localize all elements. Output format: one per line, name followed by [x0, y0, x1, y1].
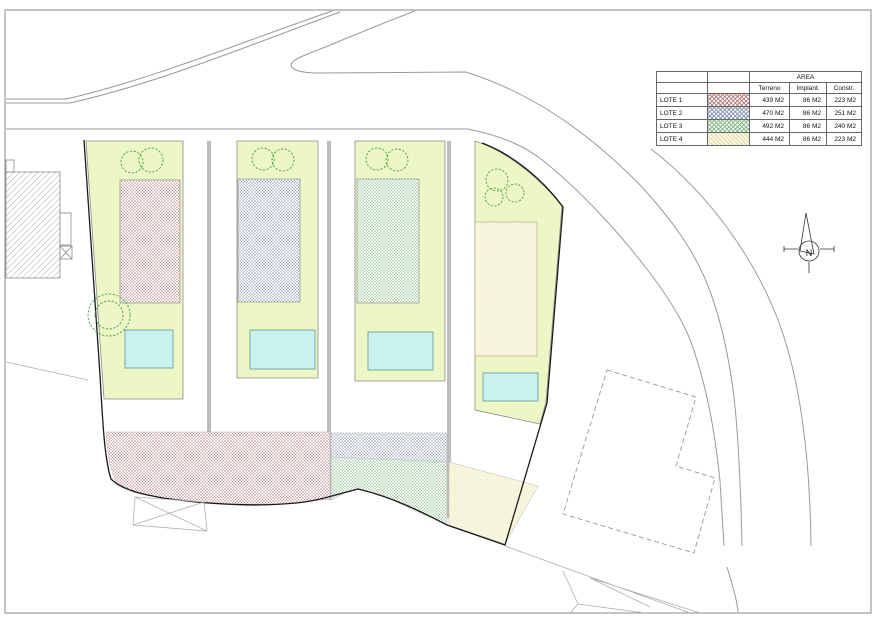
lot-3-swatch [708, 120, 750, 133]
legend-header-row-2: Terreno Implant. Constr. [657, 83, 862, 94]
legend-row-lote1: LOTE 1 439 M2 86 M2 223 M2 [657, 94, 862, 107]
lot-implant-value: 86 M2 [790, 107, 827, 120]
legend-col-implant: Implant. [790, 83, 827, 94]
lot-3-pool [368, 332, 433, 370]
neighbor-building-annex-right [60, 213, 71, 245]
lot-constr-value: 251 M2 [827, 107, 862, 120]
legend-col-constr: Constr. [827, 83, 862, 94]
legend-row-lote3: LOTE 3 492 M2 86 M2 240 M2 [657, 120, 862, 133]
lot-terreno-value: 444 M2 [750, 133, 790, 146]
lot-constr-value: 223 M2 [827, 133, 862, 146]
lot-2-swatch [708, 107, 750, 120]
lot-terreno-value: 439 M2 [750, 94, 790, 107]
lot-4-swatch [708, 133, 750, 146]
lot-implant-value: 86 M2 [790, 94, 827, 107]
lot-terreno-value: 470 M2 [750, 107, 790, 120]
lot-label: LOTE 2 [657, 107, 708, 120]
lot-label: LOTE 3 [657, 120, 708, 133]
legend-blank-cell [657, 83, 708, 94]
lot-implant-value: 86 M2 [790, 120, 827, 133]
lot-constr-value: 240 M2 [827, 120, 862, 133]
lot-1-pool [125, 330, 173, 368]
legend-row-lote4: LOTE 4 444 M2 86 M2 223 M2 [657, 133, 862, 146]
legend-row-lote2: LOTE 2 470 M2 86 M2 251 M2 [657, 107, 862, 120]
lot-2-house [238, 179, 300, 302]
legend-header-row-1: AREA [657, 72, 862, 83]
lot-1-swatch [708, 94, 750, 107]
legend-table: AREA Terreno Implant. Constr. LOTE 1 439… [656, 71, 862, 146]
legend-blank-cell [657, 72, 708, 83]
lot-terreno-value: 492 M2 [750, 120, 790, 133]
lot-1-house [120, 180, 180, 303]
lot-implant-value: 86 M2 [790, 133, 827, 146]
compass-north-label: N [806, 248, 813, 258]
divider-lot3-lot4 [447, 141, 451, 518]
legend-blank-cell [708, 72, 750, 83]
lot-4-pool [483, 373, 538, 401]
legend-area-header: AREA [750, 72, 862, 83]
lot-4-house [475, 222, 537, 356]
lot-label: LOTE 1 [657, 94, 708, 107]
neighbor-building-annex-top [6, 160, 14, 172]
legend-col-terreno: Terreno [750, 83, 790, 94]
lot-label: LOTE 4 [657, 133, 708, 146]
lot-3-house [357, 179, 419, 303]
lot-2-pool [250, 330, 315, 369]
legend-blank-cell [708, 83, 750, 94]
lot-constr-value: 223 M2 [827, 94, 862, 107]
neighbor-building-body [6, 172, 60, 278]
site-plan-page: N AREA Terreno Implant. Constr. LOTE 1 4… [0, 0, 878, 621]
